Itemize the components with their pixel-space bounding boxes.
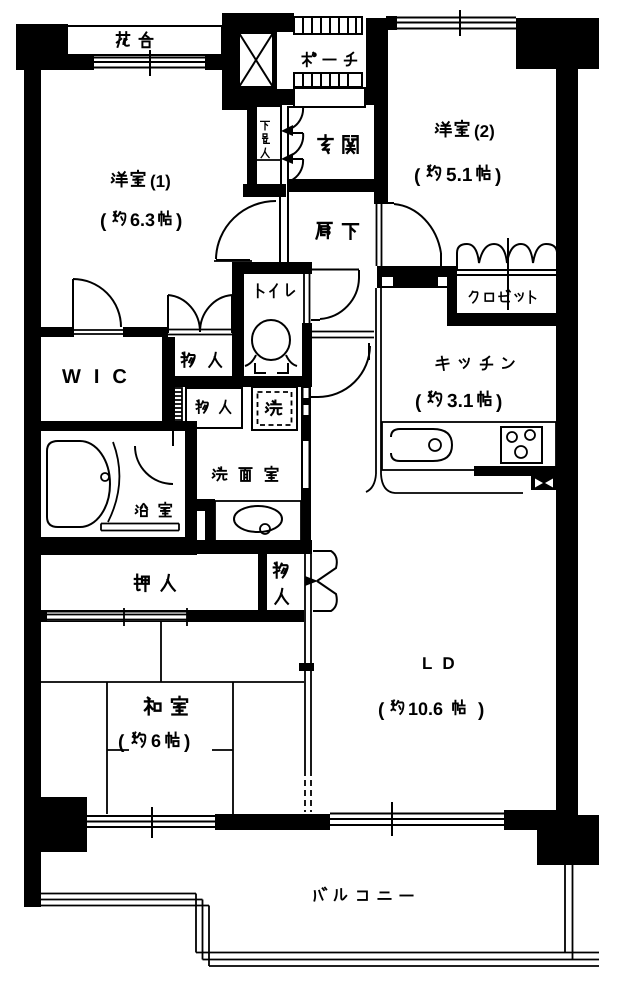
svg-text:3.1: 3.1 <box>447 391 474 412</box>
svg-text:6.3: 6.3 <box>130 210 155 230</box>
svg-text:WIC: WIC <box>62 366 140 388</box>
svg-text:(1): (1) <box>150 172 171 191</box>
svg-text:): ) <box>496 392 502 413</box>
svg-text:6: 6 <box>151 731 161 751</box>
svg-text:): ) <box>495 166 501 187</box>
svg-text:(: ( <box>414 166 421 187</box>
svg-text:): ) <box>176 211 182 232</box>
svg-text:(: ( <box>100 211 107 232</box>
svg-text:(: ( <box>415 392 422 413</box>
svg-text:(: ( <box>378 700 385 721</box>
svg-text:10.6: 10.6 <box>408 699 443 719</box>
svg-text:5.1: 5.1 <box>446 165 473 186</box>
svg-text:): ) <box>184 732 190 753</box>
svg-text:(2): (2) <box>474 122 495 141</box>
svg-text:): ) <box>478 700 484 721</box>
svg-text:LD: LD <box>422 654 465 673</box>
